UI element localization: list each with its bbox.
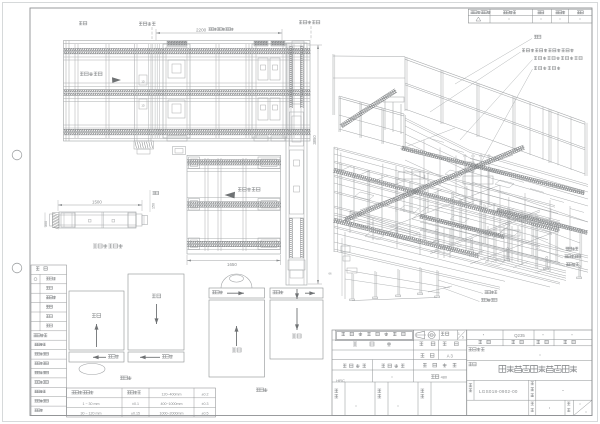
svg-text:1650: 1650 xyxy=(227,262,237,267)
svg-text:300: 300 xyxy=(44,221,48,227)
svg-text:±0.5: ±0.5 xyxy=(202,412,209,416)
svg-text:±0.2: ±0.2 xyxy=(202,392,209,396)
svg-text:±0.3: ±0.3 xyxy=(202,402,209,406)
svg-text:400~1000mm: 400~1000mm xyxy=(160,402,182,406)
svg-text:HRC: HRC xyxy=(336,378,345,383)
svg-text:150: 150 xyxy=(152,203,156,209)
svg-text:66: 66 xyxy=(329,272,333,276)
svg-text:2200: 2200 xyxy=(196,27,207,32)
svg-text:5: 5 xyxy=(462,336,464,340)
svg-text:1: 1 xyxy=(458,332,460,336)
svg-text:480: 480 xyxy=(441,375,448,380)
svg-text:120~400mm: 120~400mm xyxy=(161,392,181,396)
svg-text:30 ~ 120 mm: 30 ~ 120 mm xyxy=(80,412,101,416)
svg-text:1000~2000mm: 1000~2000mm xyxy=(159,412,183,416)
svg-text:LGS018-0902-00: LGS018-0902-00 xyxy=(479,389,518,394)
svg-text:1500: 1500 xyxy=(92,200,102,205)
svg-text:1D: 1D xyxy=(141,80,144,84)
svg-text:±0.15: ±0.15 xyxy=(131,412,140,416)
svg-text:1 ~ 30 mm: 1 ~ 30 mm xyxy=(82,402,99,406)
svg-text:3850: 3850 xyxy=(312,135,317,145)
svg-text:Q235: Q235 xyxy=(514,333,525,338)
svg-text:A 3: A 3 xyxy=(447,354,454,359)
svg-text:±0.1: ±0.1 xyxy=(132,402,139,406)
svg-text:1D: 1D xyxy=(141,104,144,108)
